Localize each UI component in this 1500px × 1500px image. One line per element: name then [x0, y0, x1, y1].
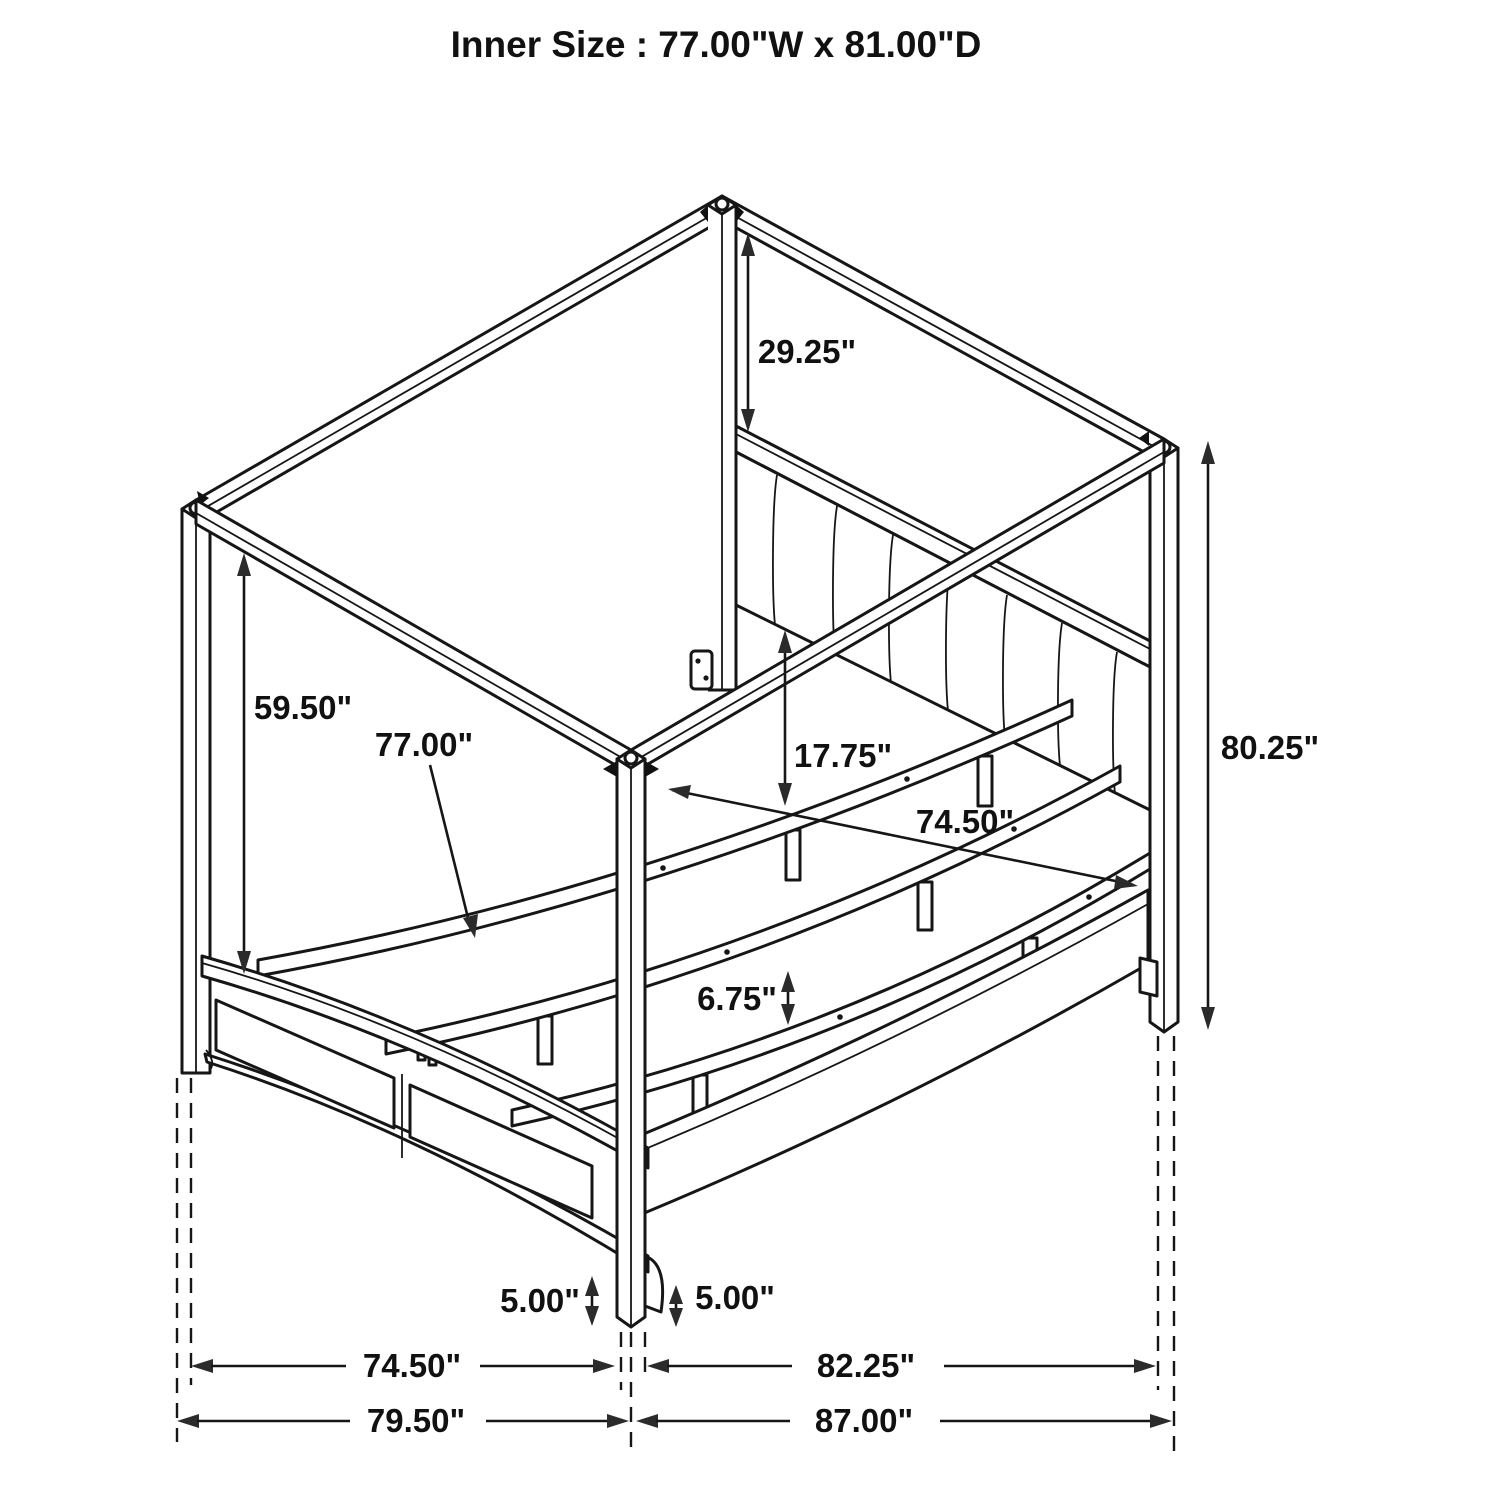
dim-side-span-inner-label: 82.25": [817, 1347, 915, 1384]
slat-leg: [918, 882, 932, 930]
dim-footboard-span-inner: 74.50": [191, 1347, 615, 1384]
dim-foot-height-left: 5.00": [500, 1276, 599, 1326]
drawing-title: Inner Size : 77.00"W x 81.00"D: [451, 24, 982, 65]
dim-footboard-span-inner-label: 74.50": [363, 1347, 461, 1384]
mounting-plate-icon: [691, 651, 712, 689]
slat-leg: [538, 1016, 552, 1064]
dim-slat-length: 77.00": [375, 726, 478, 938]
dim-slat-leg-height: 6.75": [697, 971, 795, 1025]
slat-leg: [786, 830, 800, 880]
dim-canopy-clearance: 59.50": [237, 553, 352, 974]
dim-side-span-outer-label: 87.00": [815, 1402, 913, 1439]
side-rail-foot-bracket: [1140, 958, 1157, 996]
headboard: [691, 426, 1150, 810]
dim-slat-length-label: 77.00": [375, 726, 473, 763]
dim-footboard-span-outer: 79.50": [177, 1402, 629, 1439]
dim-foot-height-left-label: 5.00": [500, 1282, 580, 1319]
dim-side-span-outer: 87.00": [636, 1402, 1172, 1439]
slat-leg: [978, 756, 992, 806]
dim-side-rail-inner-label: 74.50": [916, 803, 1014, 840]
dim-side-span-inner: 82.25": [647, 1347, 1156, 1384]
slat-rails: [258, 700, 1150, 1126]
drawing-canvas: 29.25" 59.50" 77.00" 17.75" 74.50": [0, 0, 1500, 1500]
canopy-frame-rear: [196, 196, 1164, 524]
dim-headboard-to-canopy-label: 29.25": [758, 333, 856, 370]
dim-canopy-clearance-label: 59.50": [254, 689, 352, 726]
finial-hole-icon: [625, 752, 637, 764]
dim-footboard-span-outer-label: 79.50": [367, 1402, 465, 1439]
dim-foot-height-right: 5.00": [669, 1279, 775, 1327]
dim-overall-height-label: 80.25": [1221, 729, 1319, 766]
left-post: [182, 491, 224, 1073]
dim-slat-leg-height-label: 6.75": [697, 980, 777, 1017]
finial-hole-icon: [716, 198, 728, 210]
canopy-bed-dimension-drawing: 29.25" 59.50" 77.00" 17.75" 74.50": [0, 0, 1500, 1500]
dim-foot-height-right-label: 5.00": [695, 1279, 775, 1316]
dim-headboard-panel-height-label: 17.75": [794, 737, 892, 774]
dim-overall-height: 80.25": [1201, 441, 1319, 1030]
